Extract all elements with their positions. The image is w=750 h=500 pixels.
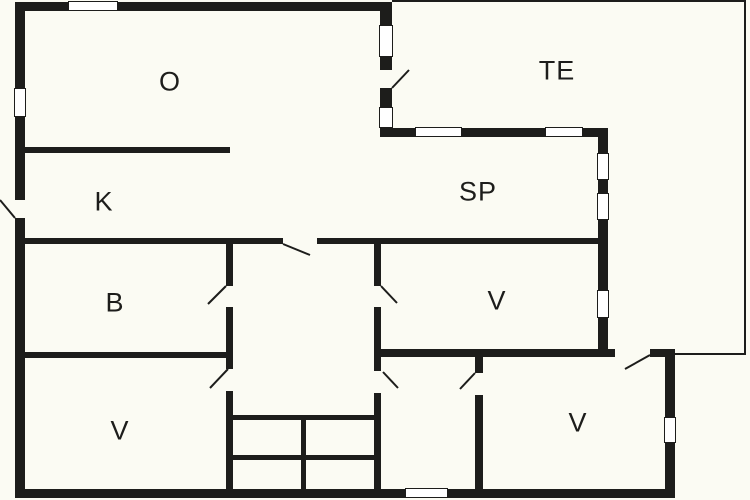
wall-k-hall-right <box>317 238 598 244</box>
door-swing-v-middle <box>381 286 397 303</box>
window-bottom <box>405 488 448 498</box>
window-sp-top-1 <box>415 127 462 137</box>
wall-hall-right-seg2 <box>374 307 381 371</box>
room-label-living: O <box>159 69 181 96</box>
window-sp-top-2 <box>545 127 583 137</box>
wall-left-seg2 <box>15 117 25 200</box>
wall-top-seg2 <box>118 2 392 11</box>
wall-o-terrace-seg1 <box>380 2 392 25</box>
wall-hall-left-seg2 <box>226 307 233 369</box>
wall-sp-right-seg2 <box>598 180 608 193</box>
floor-plan: O TE K SP B V V V <box>0 0 750 500</box>
room-label-v-bottom-left: V <box>110 418 129 445</box>
wall-hall-left-seg1 <box>226 244 233 286</box>
wall-bath-right-seg1 <box>475 357 483 373</box>
wall-mid-horizontal-seg1 <box>381 349 615 357</box>
wall-v3-right-seg2 <box>665 443 675 498</box>
wall-mid-horizontal-seg2 <box>650 349 675 357</box>
door-swing-bath-left <box>383 372 398 388</box>
door-swing-room-b <box>208 286 226 304</box>
wall-sp-top-seg1 <box>380 128 415 137</box>
wall-bath-right-seg2 <box>475 395 483 489</box>
room-label-sp: SP <box>459 179 497 206</box>
window-v3-right <box>664 417 676 443</box>
wall-sp-right-seg3 <box>598 220 608 290</box>
room-label-terrace: TE <box>539 58 576 85</box>
room-label-v-bottom-right: V <box>568 410 587 437</box>
door-swing-v-bottom-left <box>210 369 228 388</box>
window-top <box>68 1 118 11</box>
window-v-middle-right <box>597 290 609 318</box>
room-label-bath: B <box>105 290 124 317</box>
wall-bottom-seg2 <box>448 489 675 498</box>
window-sp-right-2 <box>597 193 609 220</box>
wall-sp-right-seg1 <box>598 128 608 153</box>
terrace-right-line <box>744 0 746 355</box>
terrace-bottom-line <box>675 353 746 355</box>
door-swing-v-bottom-right <box>625 355 650 369</box>
room-label-v-middle: V <box>487 288 506 315</box>
wall-v3-right-seg1 <box>665 353 675 417</box>
wall-bottom-seg1 <box>15 489 405 498</box>
wall-o-k-divider <box>25 147 230 153</box>
window-left <box>14 88 26 117</box>
door-swing-terrace <box>392 70 409 88</box>
wall-b-v-divider <box>25 352 226 358</box>
window-o-terrace-lower <box>379 107 393 128</box>
door-swing-bath-right <box>460 373 475 389</box>
wall-hall-right-seg1 <box>374 244 381 286</box>
window-sp-right-1 <box>597 153 609 180</box>
room-label-kitchen: K <box>94 189 113 216</box>
wall-hall-right-seg3 <box>374 393 381 489</box>
wall-k-hall-left <box>15 238 283 244</box>
wall-hall-left-seg3 <box>226 391 233 489</box>
door-swing-hall-top <box>283 244 310 255</box>
stairs-column-line <box>301 420 306 489</box>
door-swing-kitchen-exterior <box>0 200 15 218</box>
wall-left-seg3 <box>15 218 25 498</box>
wall-o-terrace-seg3 <box>380 88 392 107</box>
window-o-terrace-upper <box>379 25 393 57</box>
terrace-top-line <box>392 0 746 2</box>
wall-o-terrace-seg2 <box>380 57 392 70</box>
wall-sp-top-seg2 <box>462 128 545 137</box>
wall-left-seg1 <box>15 2 25 88</box>
